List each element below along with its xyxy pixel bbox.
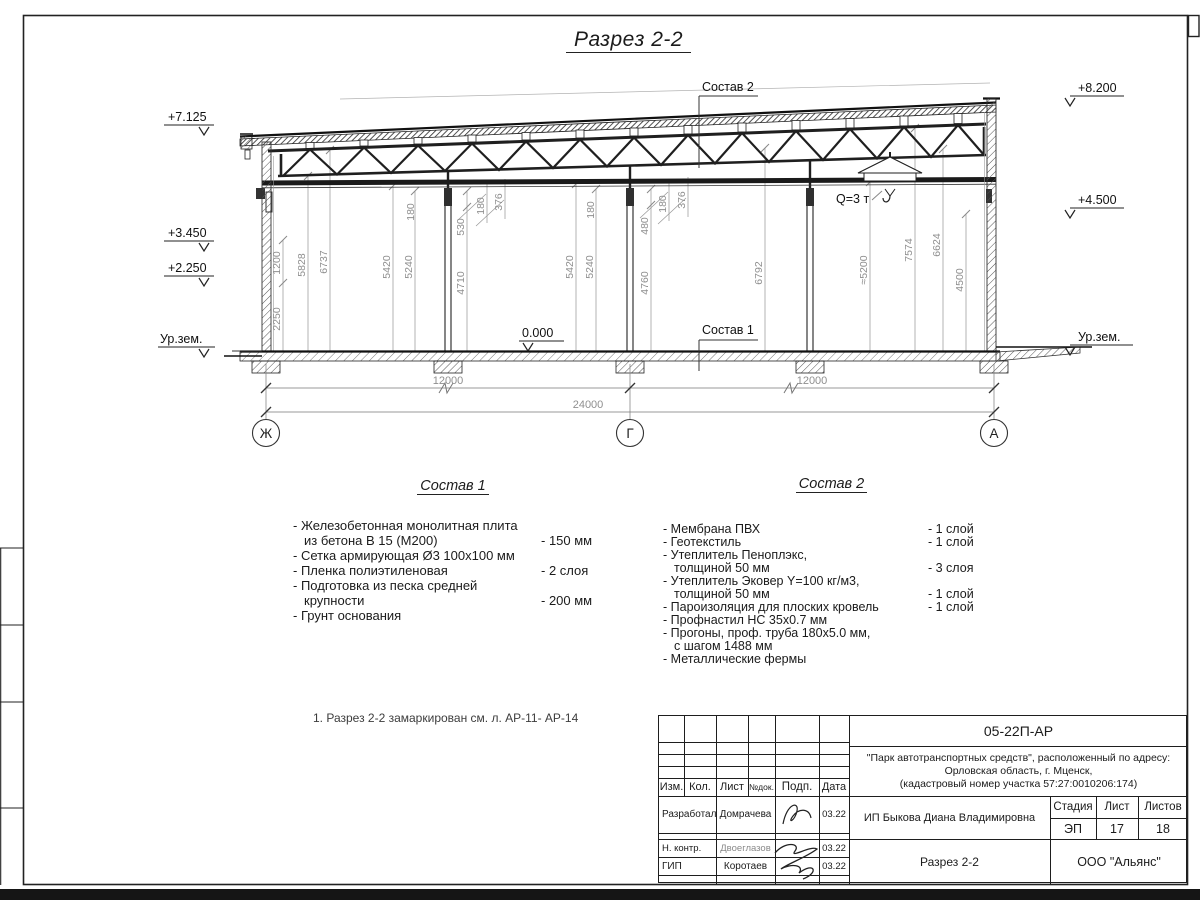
drawing-sheet: 12000 12000 24000 Ж Г А +7.125 +3.450 +2… <box>0 0 1200 900</box>
tb-sheets-header: Листов <box>1138 796 1188 818</box>
item-value: - 1 слой <box>928 536 1000 549</box>
page-title: Разрез 2-2 <box>566 28 691 53</box>
elevation-label: +2.250 <box>168 261 207 275</box>
item-text: крупности <box>293 593 541 608</box>
tb-col-header: Изм. <box>659 778 684 796</box>
tb-col-header: №док. <box>748 778 775 796</box>
title-block: Изм. Кол. Лист №док. Подп. Дата Разработ… <box>658 715 1187 883</box>
tb-name: Коротаев <box>716 857 775 875</box>
tb-stage-value: ЭП <box>1050 818 1096 839</box>
axis-label: Г <box>626 426 634 441</box>
tb-col-header: Лист <box>716 778 748 796</box>
comp2-ref-label: Состав 2 <box>702 80 754 94</box>
floor-slab <box>240 352 1000 362</box>
axis-label: Ж <box>260 426 273 441</box>
dimension-label: 4500 <box>954 268 966 292</box>
dimension-label: 24000 <box>573 399 604 411</box>
zero-level-label: 0.000 <box>522 326 553 340</box>
dimension-label: 6624 <box>931 233 943 257</box>
tb-company: ООО "Альянс" <box>1050 839 1188 884</box>
list-item: - Подготовка из песка среднейкрупности- … <box>293 578 613 608</box>
tb-stage-header: Стадия <box>1050 796 1096 818</box>
eave-fascia <box>241 136 252 149</box>
item-value: - 2 слоя <box>541 563 613 578</box>
signature-icon <box>775 797 819 832</box>
item-value: - 200 мм <box>541 593 613 608</box>
tb-sheet-value: 17 <box>1096 818 1138 839</box>
tb-project-description: "Парк автотранспортных средств", располо… <box>849 746 1188 796</box>
elevation-label: +4.500 <box>1078 193 1117 207</box>
item-text: - Железобетонная монолитная плита <box>293 518 541 533</box>
item-text: - Пленка полиэтиленовая <box>293 563 541 578</box>
item-value: - 3 слоя <box>928 562 1000 575</box>
elevation-label: +3.450 <box>168 226 207 240</box>
far-roof-edge-line <box>340 83 990 99</box>
drawing-note: 1. Разрез 2-2 замаркирован см. л. АР-11-… <box>313 711 578 725</box>
tb-name: Домрачева <box>716 796 775 833</box>
project-line: Орловская область, г. Мценск, <box>945 765 1093 778</box>
dimension-label: 180 <box>405 203 417 221</box>
dimension-label: 6792 <box>753 261 765 285</box>
dimension-label: 6737 <box>318 250 330 274</box>
dimension-label: 12000 <box>797 375 828 387</box>
item-value: - 150 мм <box>541 533 613 548</box>
dimension-label: 530 <box>455 218 467 236</box>
crane-capacity-label: Q=3 т <box>836 192 869 206</box>
list-item: - Утеплитель Пеноплэкс,толщиной 50 мм- 3… <box>663 549 1000 575</box>
item-text: - Подготовка из песка средней <box>293 578 541 593</box>
tb-name: Двоеглазов <box>716 839 775 857</box>
dimension-label: 7574 <box>903 238 915 262</box>
dimension-label: 4760 <box>639 271 651 295</box>
dimension-label: 180 <box>475 197 487 215</box>
right-wall <box>987 99 996 352</box>
tb-sheets-value: 18 <box>1138 818 1188 839</box>
dimension-label: 5828 <box>296 253 308 277</box>
composition-1: Состав 1 - Железобетонная монолитная пли… <box>293 478 613 623</box>
ground-level-label: Ур.зем. <box>160 332 202 346</box>
elevation-label: +7.125 <box>168 110 207 124</box>
elevation-label: +8.200 <box>1078 81 1117 95</box>
dimension-label: 1200 <box>271 251 283 275</box>
list-item: - Пленка полиэтиленовая- 2 слоя <box>293 563 613 578</box>
dimension-label: 5240 <box>403 255 415 279</box>
tb-col-header: Дата <box>819 778 849 796</box>
ground-level-label: Ур.зем. <box>1078 330 1120 344</box>
tb-role: Н. контр. <box>659 839 719 857</box>
dimension-label: 180 <box>657 195 669 213</box>
tb-role: Разработал <box>659 796 719 833</box>
tb-date: 03.22 <box>819 796 849 833</box>
item-value: - 1 слой <box>928 601 1000 614</box>
dimension-label: 4710 <box>455 271 467 295</box>
tb-date: 03.22 <box>819 857 849 875</box>
dimension-label: 5420 <box>564 255 576 279</box>
dimension-label: 2250 <box>271 307 283 331</box>
list-item: - Грунт основания <box>293 608 613 623</box>
composition-2-title: Состав 2 <box>663 478 1000 496</box>
tb-document-code: 05-22П-АР <box>849 716 1188 746</box>
composition-2: Состав 2 - Мембрана ПВХ- 1 слой - Геотек… <box>663 478 1000 666</box>
signature-icon <box>771 839 823 883</box>
project-line: "Парк автотранспортных средств", располо… <box>867 752 1170 765</box>
vertical-dimension-lines <box>283 128 966 352</box>
list-item: - Железобетонная монолитная плитаиз бето… <box>293 518 613 548</box>
tb-sheet-header: Лист <box>1096 796 1138 818</box>
binding-margin <box>0 548 23 885</box>
item-text: - Сетка армирующая Ø3 100х100 мм <box>293 548 541 563</box>
tb-date: 03.22 <box>819 839 849 857</box>
list-item: - Сетка армирующая Ø3 100х100 мм <box>293 548 613 563</box>
list-item: - Металлические фермы <box>663 653 1000 666</box>
composition-1-title: Состав 1 <box>293 478 613 496</box>
tb-col-header: Кол. <box>684 778 716 796</box>
list-item: - Утеплитель Эковер Y=100 кг/м3,толщиной… <box>663 575 1000 601</box>
dimension-label: 376 <box>676 191 688 209</box>
axis-bubbles: Ж Г А <box>253 420 1008 447</box>
item-text: - Металлические фермы <box>663 653 928 666</box>
tb-role: ГИП <box>659 857 719 875</box>
dimension-label: 5420 <box>381 255 393 279</box>
dimension-label: 5240 <box>584 255 596 279</box>
item-text: - Грунт основания <box>293 608 541 623</box>
dimension-label: 12000 <box>433 375 464 387</box>
tb-client: ИП Быкова Диана Владимировна <box>849 796 1050 839</box>
comp1-ref-label: Состав 1 <box>702 323 754 337</box>
dimension-label: 480 <box>639 217 651 235</box>
dimension-label: ≈5200 <box>858 255 870 284</box>
tb-col-header: Подп. <box>775 778 819 796</box>
item-text: из бетона В 15 (М200) <box>293 533 541 548</box>
project-line: (кадастровый номер участка 57:27:0010206… <box>900 778 1137 791</box>
left-wall <box>262 142 271 352</box>
composition-2-list: - Мембрана ПВХ- 1 слой - Геотекстиль- 1 … <box>663 523 1000 666</box>
dimension-label: 180 <box>585 201 597 219</box>
hook-icon <box>883 196 890 202</box>
dimension-label: 376 <box>493 193 505 211</box>
tb-doc-title: Разрез 2-2 <box>849 839 1050 884</box>
scan-edge-bar <box>0 889 1200 900</box>
axis-label: А <box>989 426 998 441</box>
composition-1-list: - Железобетонная монолитная плитаиз бето… <box>293 518 613 623</box>
vertical-dimension-labels: 1200 2250 5828 6737 5420 5240 180 530 47… <box>271 191 966 331</box>
list-item: - Прогоны, проф. труба 180х5.0 мм,с шаго… <box>663 627 1000 653</box>
horizontal-dimensions: 12000 12000 24000 <box>261 364 999 419</box>
